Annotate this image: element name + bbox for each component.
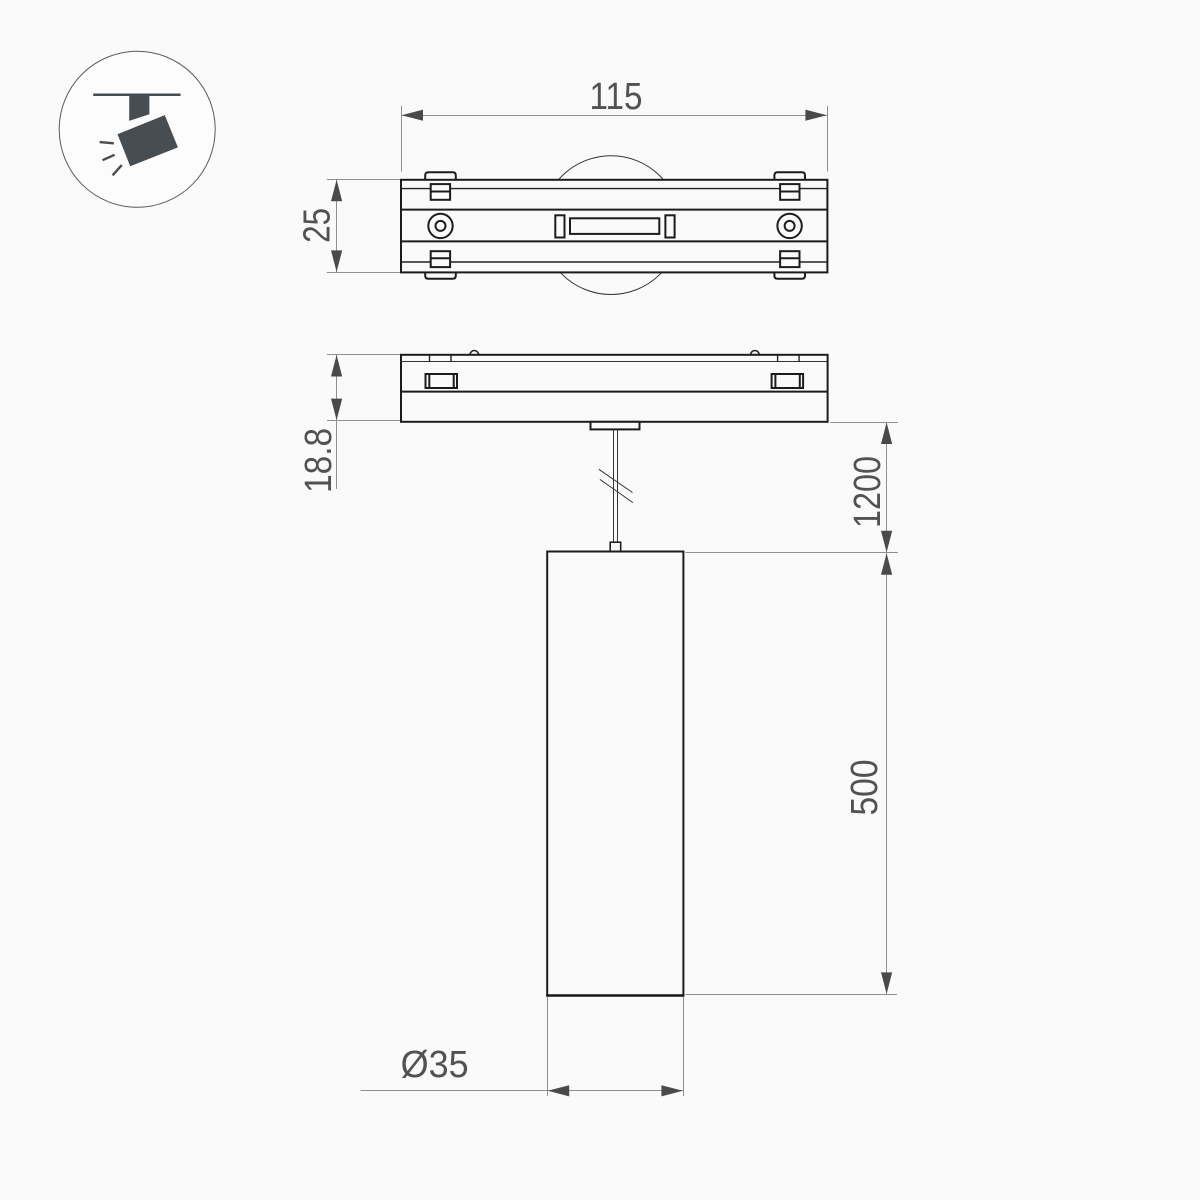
svg-text:25: 25 bbox=[297, 208, 339, 243]
svg-text:18.8: 18.8 bbox=[298, 428, 340, 493]
svg-text:1200: 1200 bbox=[847, 456, 889, 528]
svg-text:500: 500 bbox=[844, 760, 886, 816]
svg-text:Ø35: Ø35 bbox=[401, 1044, 469, 1086]
svg-text:115: 115 bbox=[590, 76, 643, 118]
